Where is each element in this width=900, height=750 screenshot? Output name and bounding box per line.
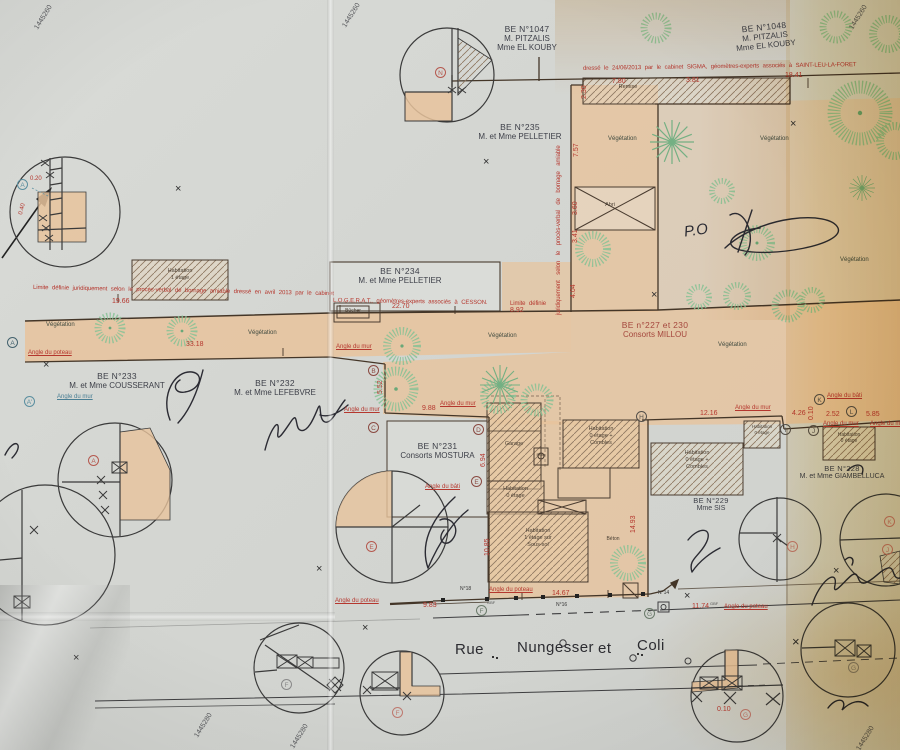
- vegetation-label: Végétation: [840, 257, 869, 263]
- building-label: Puits: [533, 452, 549, 457]
- street-name: Rue: [455, 641, 484, 658]
- point-f: F: [476, 605, 487, 616]
- angle-label: Angle du mur: [57, 394, 93, 400]
- street-name: et: [598, 640, 612, 657]
- building-label: Habitation 0 étage + Combles: [566, 426, 636, 447]
- point-f-detail: F: [392, 707, 403, 718]
- angle-label: Angle du bâti: [827, 393, 862, 399]
- angle-label: Angle du poteau: [724, 604, 768, 610]
- x-mark: ×: [483, 158, 489, 166]
- street-name: Nungesser: [517, 639, 594, 656]
- x-mark: ×: [43, 361, 49, 369]
- point-g: G: [644, 608, 655, 619]
- point-c: C: [368, 422, 379, 433]
- road-lines: [90, 600, 900, 708]
- building-label: Abri: [592, 202, 628, 209]
- measurement: 3.60: [572, 201, 579, 215]
- detail-circle-a: [10, 157, 120, 267]
- measurement: 11.74: [692, 603, 709, 610]
- signature-lefebvre: [265, 400, 348, 450]
- angle-label: Angle du poteau: [489, 587, 533, 593]
- measurement: 2.52: [826, 411, 840, 418]
- measurement: 33.18: [186, 341, 204, 348]
- house-number: N°18: [460, 586, 471, 592]
- building-label: Habitation 1 étage sur Sous-sol: [490, 528, 586, 549]
- building-label: Habitation 0 étage: [744, 424, 780, 435]
- measurement: 9.83: [423, 602, 437, 609]
- angle-label: Angle du mur: [870, 421, 900, 427]
- x-mark: ×: [73, 654, 79, 662]
- angle-label: Angle du poteau: [335, 598, 379, 604]
- building-label: Garage: [496, 441, 532, 448]
- point-h-detail: H: [787, 541, 798, 552]
- point-g-detail: G: [740, 709, 751, 720]
- building-label: Habitation 0 étage + Combles: [654, 450, 740, 471]
- point-k: K: [814, 394, 825, 405]
- signature-small-left: [5, 444, 18, 458]
- vegetation-label: Végétation: [608, 136, 637, 142]
- note-limite-vertical: juridiquement selon le procès-verbal de …: [556, 145, 562, 315]
- point-l: L: [846, 406, 857, 417]
- signature-sis: [688, 530, 720, 572]
- measurement: 0.10: [717, 706, 731, 713]
- angle-label: Angle du mur: [823, 421, 859, 427]
- point-a: A: [88, 455, 99, 466]
- measurement: 3.41: [572, 229, 579, 243]
- x-mark: ×: [792, 638, 800, 646]
- point-a-prime: A': [24, 396, 35, 407]
- signature-small-bottom: [828, 700, 868, 710]
- detail-circle-g2: [801, 603, 895, 697]
- detail-circle-jk: [840, 494, 900, 586]
- detail-circle-left-edge: [0, 485, 115, 625]
- parcel-label-235: BE N°235 M. et Mme PELLETIER: [455, 122, 585, 141]
- manhole-icon: [658, 602, 669, 612]
- measurement: 4.26: [792, 410, 806, 417]
- point-a: A: [7, 337, 18, 348]
- x-mark: ×: [175, 185, 181, 193]
- measurement: 0.20: [30, 176, 42, 182]
- parcel-label-227-230: BE n°227 et 230 Consorts MILLOU: [585, 320, 725, 339]
- point-a: A: [17, 179, 28, 190]
- vegetation-label: Végétation: [718, 342, 747, 348]
- x-mark: ×: [651, 291, 657, 299]
- detail-circle-f1: [254, 623, 344, 713]
- measurement: 14.67: [552, 590, 570, 597]
- angle-label: Angle du bâti: [425, 484, 460, 490]
- x-mark: ×: [790, 120, 796, 128]
- measurement: 9.88: [422, 405, 436, 412]
- point-e: E: [471, 476, 482, 487]
- point-i: I: [780, 424, 791, 435]
- point-n: N: [435, 67, 446, 78]
- point-d: D: [473, 424, 484, 435]
- street-name: Coli: [637, 637, 665, 654]
- building-label: Habitation 1 étage: [134, 268, 226, 282]
- parcel-label-232: BE N°232 M. et Mme LEFEBVRE: [205, 378, 345, 397]
- measurement: 3.81: [686, 77, 700, 84]
- measurement: 19.66: [112, 298, 130, 305]
- parcel-label-229: BE N°229 Mme SIS: [671, 496, 751, 512]
- point-g-detail: G: [848, 662, 859, 673]
- vegetation-label: Végétation: [760, 136, 789, 142]
- vegetation-label: Végétation: [46, 322, 75, 328]
- survey-plan-photo: 1445260 1445260 1445260 1445280 1445280 …: [0, 0, 900, 750]
- utility-label: GBF: [710, 601, 718, 606]
- measurement: 18.41: [785, 72, 803, 79]
- house-number: N°14: [658, 590, 669, 596]
- parcel-label-1047: BE N°1047 M. PITZALIS Mme EL KOUBY: [462, 24, 592, 52]
- x-mark: ×: [684, 592, 690, 600]
- point-k-detail: K: [884, 516, 895, 527]
- angle-label: Angle du mur: [336, 344, 372, 350]
- building-label: Habitation 0 étage: [489, 486, 542, 500]
- house-number: N°16: [556, 602, 567, 608]
- point-e-detail: E: [366, 541, 377, 552]
- parcel-label-234: BE N°234 M. et Mme PELLETIER: [330, 266, 470, 285]
- measurement: 12.16: [700, 410, 718, 417]
- parcel-label-228: BE N°228 M. et Mme GIAMBELLUCA: [772, 464, 900, 480]
- point-j-detail: J: [882, 544, 893, 555]
- vegetation-label: Végétation: [248, 330, 277, 336]
- angle-label: Angle du mur: [440, 401, 476, 407]
- measurement: 0.10: [808, 406, 815, 420]
- angle-label: Angle du mur: [735, 405, 771, 411]
- measurement: 5.52: [377, 380, 384, 394]
- measurement: 4.04: [570, 284, 577, 298]
- x-mark: ×: [362, 624, 368, 632]
- measurement: 7.57: [573, 143, 580, 157]
- detail-circle-f2: [360, 651, 444, 735]
- x-mark: ×: [833, 567, 839, 575]
- x-mark: ×: [316, 565, 322, 573]
- point-f-detail: F: [281, 679, 292, 690]
- building-label: Remise: [608, 84, 648, 91]
- building-label: Béton: [598, 536, 628, 542]
- measurement: 14.93: [630, 515, 637, 533]
- angle-label: Angle du poteau: [28, 350, 72, 356]
- measurement: 5.85: [866, 411, 880, 418]
- tan-parcel-areas: [25, 85, 900, 599]
- point-h: H: [636, 411, 647, 422]
- measurement: 2.30: [581, 85, 588, 99]
- detail-circle-g1: [691, 650, 783, 742]
- building-label: Habitation 0 étage: [824, 432, 874, 445]
- point-j: J: [808, 425, 819, 436]
- measurement: 6.94: [480, 453, 487, 467]
- measurement: 22.70: [392, 303, 410, 310]
- building-label: Bûcher: [338, 308, 368, 314]
- detail-circle-a2: [58, 423, 172, 537]
- detail-circle-h: [739, 497, 821, 582]
- vegetation-label: Végétation: [488, 333, 517, 339]
- utility-label: GBF: [487, 600, 495, 605]
- parcel-label-233: BE N°233 M. et Mme COUSSERANT: [52, 371, 182, 390]
- point-b: B: [368, 365, 379, 376]
- measurement: 8.92: [510, 307, 524, 314]
- handwritten-po: P.O: [683, 220, 709, 240]
- angle-label: Angle du mur: [344, 407, 380, 413]
